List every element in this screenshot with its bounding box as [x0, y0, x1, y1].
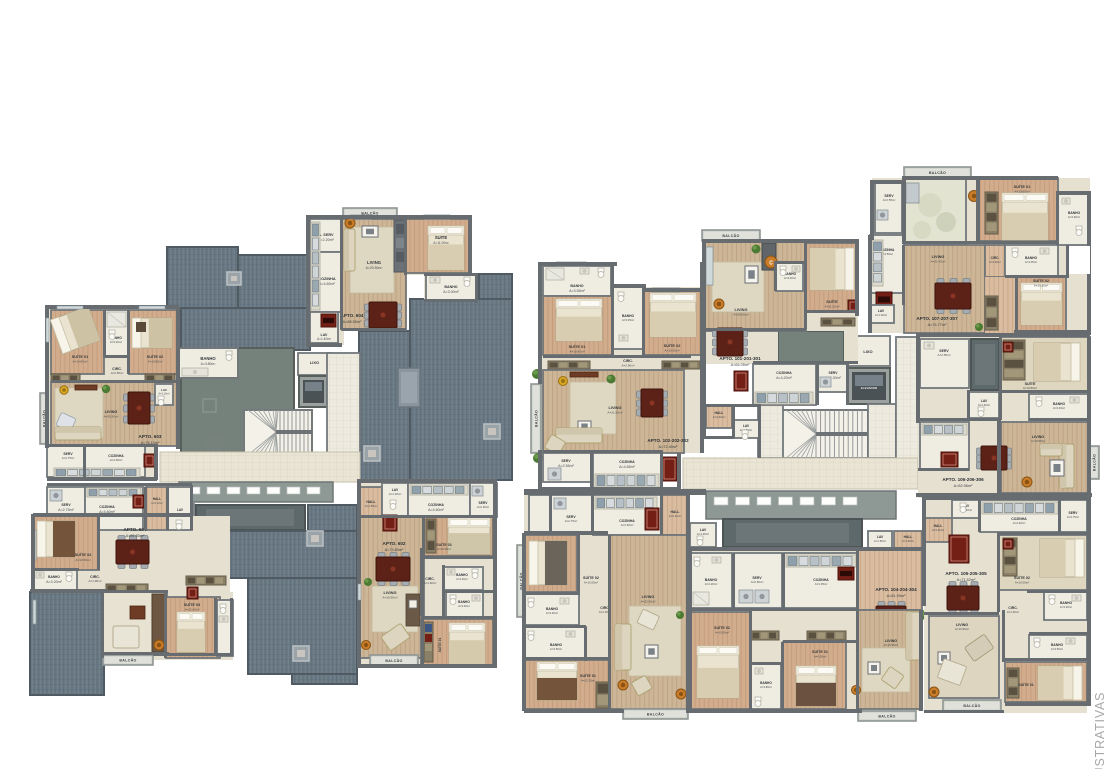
svg-text:A=3.50m²: A=3.50m²: [1051, 647, 1063, 651]
svg-text:A=3.90m²: A=3.90m²: [1068, 215, 1080, 219]
svg-text:A=4.60m²: A=4.60m²: [428, 508, 444, 512]
svg-text:COZINHA: COZINHA: [776, 371, 792, 375]
svg-text:LIXO: LIXO: [310, 360, 319, 365]
svg-text:SUÍTE 01: SUÍTE 01: [812, 649, 828, 654]
svg-text:A=10.85m²: A=10.85m²: [148, 360, 163, 364]
svg-text:CIRC.: CIRC.: [991, 256, 1000, 260]
svg-text:A=1.30m²: A=1.30m²: [978, 403, 990, 407]
svg-text:A=2.10m²: A=2.10m²: [151, 501, 163, 505]
svg-text:SUÍTE 02: SUÍTE 02: [1033, 278, 1049, 283]
svg-text:APTO. 107-207-307: APTO. 107-207-307: [916, 316, 958, 321]
svg-text:SUÍTE 03: SUÍTE 03: [184, 602, 200, 607]
svg-text:SERV: SERV: [61, 503, 71, 507]
svg-text:SUÍTE 01: SUÍTE 01: [437, 638, 442, 653]
svg-text:A=10.50m²: A=10.50m²: [437, 547, 451, 551]
svg-text:APTO. 106-206-306: APTO. 106-206-306: [942, 477, 984, 482]
svg-text:A=4.35m²: A=4.35m²: [815, 582, 828, 586]
svg-text:BALCÃO: BALCÃO: [385, 658, 402, 663]
svg-text:LIVING: LIVING: [609, 405, 622, 410]
svg-text:A=3.40m²: A=3.40m²: [784, 276, 796, 280]
svg-text:BANHO: BANHO: [456, 573, 468, 577]
svg-text:A=2.55m²: A=2.55m²: [883, 198, 896, 202]
svg-text:LIVING: LIVING: [384, 590, 397, 595]
svg-text:BANHO: BANHO: [48, 575, 60, 579]
svg-text:APTO. 102-202-302: APTO. 102-202-302: [647, 438, 689, 443]
svg-text:A=3.00m²: A=3.00m²: [443, 290, 459, 294]
svg-text:A=2.75m²: A=2.75m²: [62, 456, 75, 460]
svg-text:A=74.77m²: A=74.77m²: [928, 323, 947, 327]
svg-text:APTO. 101-201-301: APTO. 101-201-301: [719, 356, 761, 361]
svg-text:SUÍTE 01: SUÍTE 01: [580, 673, 596, 678]
svg-text:A=22.90m²: A=22.90m²: [641, 600, 656, 604]
svg-text:APTO. 105-205-305: APTO. 105-205-305: [945, 571, 987, 576]
svg-text:BALCÃO: BALCÃO: [1092, 454, 1097, 471]
svg-text:APTO. 604: APTO. 604: [341, 313, 364, 318]
svg-text:A=1.30m²: A=1.30m²: [697, 532, 709, 536]
svg-text:A=2.30m²: A=2.30m²: [989, 260, 1001, 264]
svg-text:LAV: LAV: [177, 508, 184, 512]
svg-text:SUÍTE: SUÍTE: [826, 299, 838, 304]
svg-text:A=3.40m²: A=3.40m²: [1053, 406, 1065, 410]
svg-text:A=11.20m²: A=11.20m²: [825, 305, 840, 309]
svg-text:A=3.05m²: A=3.05m²: [1025, 260, 1037, 264]
svg-text:SUÍTE 02: SUÍTE 02: [583, 575, 599, 580]
svg-text:A=3.80m²: A=3.80m²: [760, 685, 772, 689]
svg-text:A=4.60m²: A=4.60m²: [319, 282, 335, 286]
svg-text:A=4.20m²: A=4.20m²: [705, 582, 718, 586]
svg-text:LIVING: LIVING: [642, 595, 655, 599]
svg-text:APTO. 601: APTO. 601: [124, 527, 147, 532]
svg-text:A=52.96m²: A=52.96m²: [954, 484, 973, 488]
svg-text:A=3.20m²: A=3.20m²: [110, 340, 122, 344]
svg-text:SERV: SERV: [829, 371, 839, 375]
svg-text:A=88.55m²: A=88.55m²: [343, 320, 362, 324]
svg-text:A=29.00m²: A=29.00m²: [733, 313, 748, 317]
svg-text:SUÍTE 02: SUÍTE 02: [1014, 575, 1030, 580]
svg-text:SUITE: SUITE: [435, 235, 448, 240]
svg-text:SUÍTE 01: SUÍTE 01: [1018, 682, 1034, 687]
svg-text:SUÍTE 02: SUÍTE 02: [714, 625, 730, 630]
svg-text:BALCÃO: BALCÃO: [534, 410, 539, 427]
svg-text:APTO. 603: APTO. 603: [139, 434, 162, 439]
svg-text:A=10.85m²: A=10.85m²: [1014, 190, 1029, 194]
svg-text:A=10.05m²: A=10.05m²: [664, 349, 679, 353]
svg-text:LIVING: LIVING: [367, 260, 381, 265]
svg-text:A=2.20m²: A=2.20m²: [318, 238, 334, 242]
svg-text:SUÍTE 02: SUÍTE 02: [664, 343, 682, 348]
svg-text:A=10.85m²: A=10.85m²: [569, 350, 584, 354]
svg-text:A=3.55m²: A=3.55m²: [569, 289, 585, 293]
svg-text:SUÍTE 02: SUÍTE 02: [75, 552, 93, 557]
svg-text:A=12.00m²: A=12.00m²: [185, 608, 200, 612]
svg-text:BALCÃO: BALCÃO: [119, 658, 136, 663]
svg-text:A=3.20m²: A=3.20m²: [46, 580, 62, 584]
svg-text:A=3.10m²: A=3.10m²: [669, 514, 682, 518]
svg-text:A=10.05m²: A=10.05m²: [584, 581, 598, 585]
svg-text:A=3.20m²: A=3.20m²: [456, 577, 468, 581]
svg-text:A=11.00m²: A=11.00m²: [433, 241, 448, 245]
svg-text:HALL: HALL: [153, 497, 162, 501]
svg-text:BALCÃO: BALCÃO: [647, 712, 664, 717]
svg-text:A=3.50m²: A=3.50m²: [550, 647, 562, 651]
svg-text:A=10.50m²: A=10.50m²: [75, 558, 90, 562]
svg-text:LAV: LAV: [161, 388, 167, 392]
svg-text:BALCÃO: BALCÃO: [878, 714, 895, 719]
svg-text:BANHO: BANHO: [444, 285, 457, 289]
svg-text:A=16.90m²: A=16.90m²: [955, 627, 969, 631]
svg-text:A=20.50m²: A=20.50m²: [366, 266, 384, 270]
svg-text:A=1.30m²: A=1.30m²: [1007, 610, 1019, 614]
svg-text:ELEVADOR: ELEVADOR: [861, 386, 878, 390]
svg-text:A=3.20m²: A=3.20m²: [1060, 605, 1072, 609]
svg-text:A=3.20m²: A=3.20m²: [546, 611, 558, 615]
svg-text:APTO. 104-204-304: APTO. 104-204-304: [875, 587, 917, 592]
svg-text:A=16.90m²: A=16.90m²: [382, 596, 397, 600]
svg-text:A=3.80m²: A=3.80m²: [201, 362, 217, 366]
svg-text:SUÍTE 01: SUÍTE 01: [1014, 184, 1032, 189]
svg-text:A=1.55m²: A=1.55m²: [365, 504, 378, 508]
svg-text:A=1.90m²: A=1.90m²: [424, 581, 437, 585]
svg-text:A=3.40m²: A=3.40m²: [932, 528, 944, 532]
svg-text:A=64.05m²: A=64.05m²: [731, 363, 750, 367]
svg-text:A. SERV: A. SERV: [318, 233, 334, 237]
svg-text:A=81.80m²: A=81.80m²: [126, 534, 145, 538]
svg-text:A=61.93m²: A=61.93m²: [887, 594, 906, 598]
svg-text:A=73.80m²: A=73.80m²: [385, 548, 404, 552]
svg-text:A=2.55m²: A=2.55m²: [558, 464, 574, 468]
svg-text:APTO. 602: APTO. 602: [383, 541, 406, 546]
svg-text:A=19.55m²: A=19.55m²: [1031, 439, 1045, 443]
svg-text:SUÍTE 02: SUÍTE 02: [147, 354, 163, 359]
svg-text:A=1.10m²: A=1.10m²: [158, 392, 169, 396]
svg-text:SUÍTE 01: SUÍTE 01: [569, 344, 587, 349]
svg-text:LIVING: LIVING: [105, 410, 118, 414]
svg-text:A=3.20m²: A=3.20m²: [458, 604, 470, 608]
svg-text:LIVING: LIVING: [735, 307, 748, 312]
svg-text:BANHO: BANHO: [458, 600, 470, 604]
svg-text:A=2.50m²: A=2.50m²: [751, 580, 764, 584]
svg-text:A=4.40m²: A=4.40m²: [1013, 521, 1026, 525]
svg-text:A=3.35m²: A=3.35m²: [622, 318, 634, 322]
svg-text:A=72.40m²: A=72.40m²: [659, 445, 678, 449]
svg-text:A=12.25m²: A=12.25m²: [581, 679, 595, 683]
svg-text:A=4.40m²: A=4.40m²: [713, 415, 726, 419]
svg-text:COZINHA: COZINHA: [99, 505, 115, 509]
svg-text:A=2.55m²: A=2.55m²: [111, 371, 124, 375]
svg-text:BALCÃO: BALCÃO: [929, 170, 946, 175]
svg-text:A=1.30m²: A=1.30m²: [389, 492, 402, 496]
svg-text:A=1.50m²: A=1.50m²: [874, 539, 886, 543]
svg-text:CIRC.: CIRC.: [623, 359, 633, 363]
svg-text:LIVING: LIVING: [932, 255, 945, 259]
svg-text:BANHO: BANHO: [570, 284, 583, 288]
svg-text:BANHO: BANHO: [760, 681, 772, 685]
svg-text:A=9.50m²: A=9.50m²: [814, 655, 827, 659]
svg-text:A=2.75m²: A=2.75m²: [565, 519, 578, 523]
svg-text:A=4.60m²: A=4.60m²: [110, 458, 123, 462]
svg-text:A=10.50m²: A=10.50m²: [1034, 284, 1048, 288]
svg-text:LIXO: LIXO: [863, 349, 872, 354]
svg-text:A=1.60m²: A=1.60m²: [902, 539, 914, 543]
svg-text:A=10.80m²: A=10.80m²: [1023, 386, 1037, 390]
svg-text:A=10.00m²: A=10.00m²: [1015, 581, 1029, 585]
svg-text:BALCÃO: BALCÃO: [963, 703, 980, 708]
svg-text:A=20.50m²: A=20.50m²: [104, 415, 119, 419]
svg-text:SUÍTE 01: SUÍTE 01: [72, 354, 88, 359]
svg-text:SERV: SERV: [561, 459, 571, 463]
svg-text:A=2.75m²: A=2.75m²: [58, 508, 74, 512]
svg-text:C: C: [769, 261, 773, 267]
svg-text:A=10.50m²: A=10.50m²: [715, 631, 729, 635]
svg-text:A=15.55m²: A=15.55m²: [884, 643, 898, 647]
svg-text:BANHO: BANHO: [200, 356, 216, 361]
svg-text:COZINHA: COZINHA: [428, 503, 444, 507]
svg-text:A=2.75m²: A=2.75m²: [1067, 515, 1079, 519]
svg-text:A=10.85m²: A=10.85m²: [73, 360, 88, 364]
svg-text:COZINHA: COZINHA: [318, 277, 336, 281]
svg-text:A=4.65m²: A=4.65m²: [619, 465, 635, 469]
svg-text:A=2.55m²: A=2.55m²: [937, 353, 950, 357]
svg-text:A=4.20m²: A=4.20m²: [776, 376, 792, 380]
svg-text:USTRATIVAS: USTRATIVAS: [1093, 692, 1107, 769]
svg-text:A=1.40m²: A=1.40m²: [317, 337, 331, 341]
svg-text:A=1.90m²: A=1.90m²: [88, 579, 101, 583]
svg-text:A=21.50m²: A=21.50m²: [607, 411, 622, 415]
svg-text:BALCÃO: BALCÃO: [722, 233, 739, 238]
svg-text:COZINHA: COZINHA: [619, 460, 635, 464]
svg-text:A=2.30m²: A=2.30m²: [477, 505, 489, 509]
svg-text:A=4.60m²: A=4.60m²: [621, 523, 634, 527]
svg-text:A=1.30m²: A=1.30m²: [875, 313, 887, 317]
svg-text:A=2.90m²: A=2.90m²: [621, 364, 634, 368]
svg-text:A=21.45m²: A=21.45m²: [931, 260, 946, 264]
